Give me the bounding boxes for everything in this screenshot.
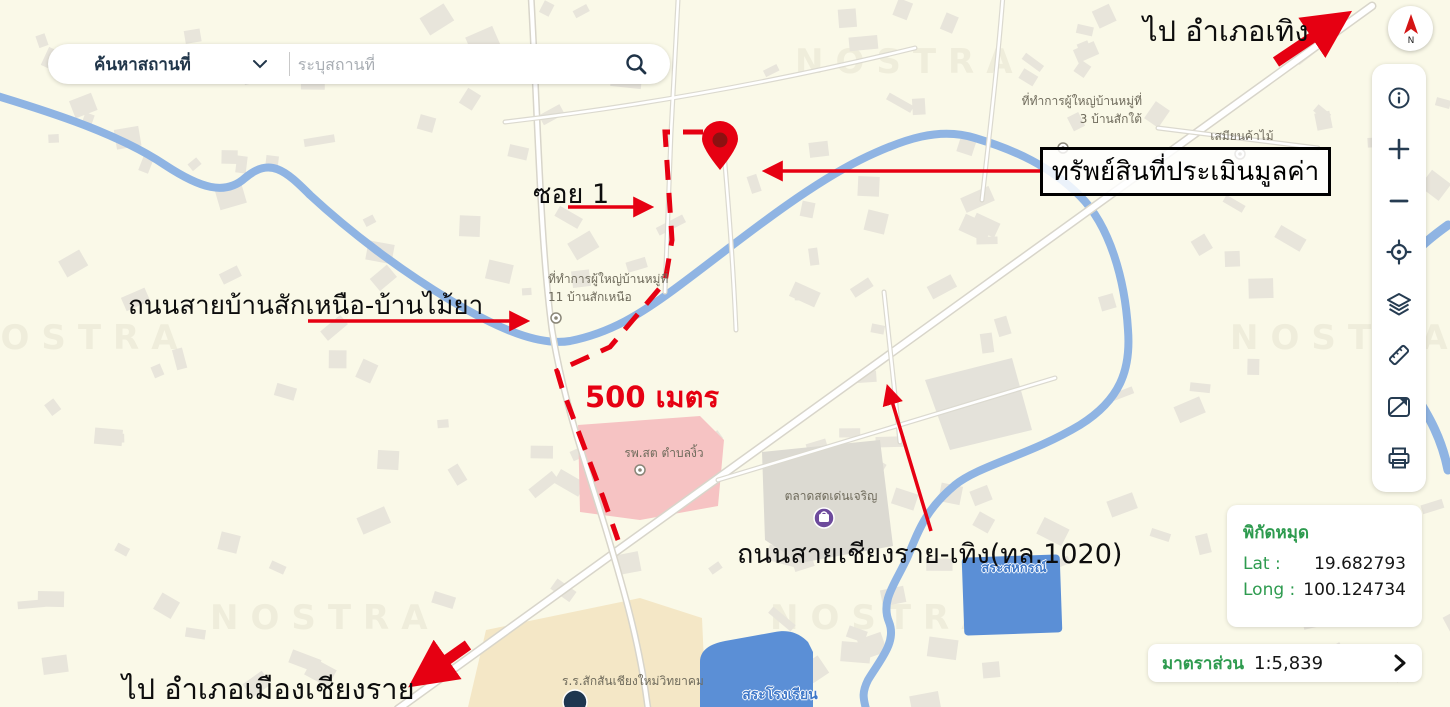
ruler-icon: [1386, 342, 1412, 368]
zoom-in-button[interactable]: [1383, 133, 1415, 165]
measure-button[interactable]: [1383, 339, 1415, 371]
property-pin-icon: [702, 121, 738, 170]
annotation-road-chiangrai-thoeng: ถนนสายเชียงราย-เทิง(ทล.1020): [737, 532, 1122, 575]
info-icon: [1387, 86, 1411, 110]
locate-button[interactable]: [1383, 236, 1415, 268]
annotation-arrows: [308, 19, 1340, 679]
annotation-to-mueang-chiangrai: ไป อำเภอเมืองเชียงราย: [122, 666, 415, 707]
basemap-button[interactable]: [1383, 391, 1415, 423]
annotation-property-box: ทรัพย์สินที่ประเมินมูลค่า: [1040, 147, 1331, 196]
coordinates-title: พิกัดหมุด: [1243, 519, 1406, 546]
map-toolbar: [1372, 64, 1426, 492]
lat-label: Lat :: [1243, 554, 1281, 574]
scale-value: 1:5,839: [1254, 653, 1323, 674]
annotation-soi-1: ซอย 1: [533, 172, 609, 215]
search-category-label: ค้นหาสถานที่: [94, 51, 191, 78]
print-button[interactable]: [1383, 442, 1415, 474]
coordinates-panel: พิกัดหมุด Lat : 19.682793 Long : 100.124…: [1227, 505, 1422, 627]
market-icon: [814, 508, 834, 528]
school-icon: [563, 690, 587, 707]
info-button[interactable]: [1383, 82, 1415, 114]
scale-expand-button[interactable]: [1392, 654, 1408, 672]
annotation-to-thoeng: ไป อำเภอเทิง: [1143, 8, 1309, 54]
chevron-down-icon: [251, 55, 269, 73]
printer-icon: [1386, 445, 1412, 471]
compass-north-icon: N: [1396, 12, 1426, 46]
long-value: 100.124734: [1303, 580, 1406, 600]
map-canvas[interactable]: NOSTRA NOSTRA NOSTRA NOSTRA NOSTRA: [0, 0, 1450, 707]
chevron-right-icon: [1392, 654, 1408, 672]
layers-button[interactable]: [1383, 288, 1415, 320]
annotation-road-bansak: ถนนสายบ้านสักเหนือ-บ้านไม้ยา: [128, 285, 483, 326]
layers-icon: [1386, 291, 1412, 317]
search-icon: [624, 52, 648, 76]
annotation-distance-500m: 500 เมตร: [585, 374, 719, 420]
compass-button[interactable]: N: [1388, 6, 1433, 51]
scale-bar: มาตราส่วน 1:5,839: [1148, 644, 1422, 682]
basemap-icon: [1386, 394, 1412, 420]
search-divider: [289, 52, 290, 76]
zoom-out-button[interactable]: [1383, 185, 1415, 217]
search-bar: ค้นหาสถานที่: [48, 44, 670, 84]
long-label: Long :: [1243, 580, 1295, 600]
search-category-dropdown[interactable]: ค้นหาสถานที่: [48, 51, 283, 78]
minus-icon: [1387, 189, 1411, 213]
scale-label: มาตราส่วน: [1162, 650, 1244, 677]
search-button[interactable]: [616, 52, 670, 76]
search-input[interactable]: [296, 54, 616, 75]
svg-text:N: N: [1407, 36, 1414, 46]
locate-icon: [1386, 239, 1412, 265]
plus-icon: [1387, 137, 1411, 161]
lat-value: 19.682793: [1314, 554, 1406, 574]
pond-layer: [700, 554, 1062, 707]
